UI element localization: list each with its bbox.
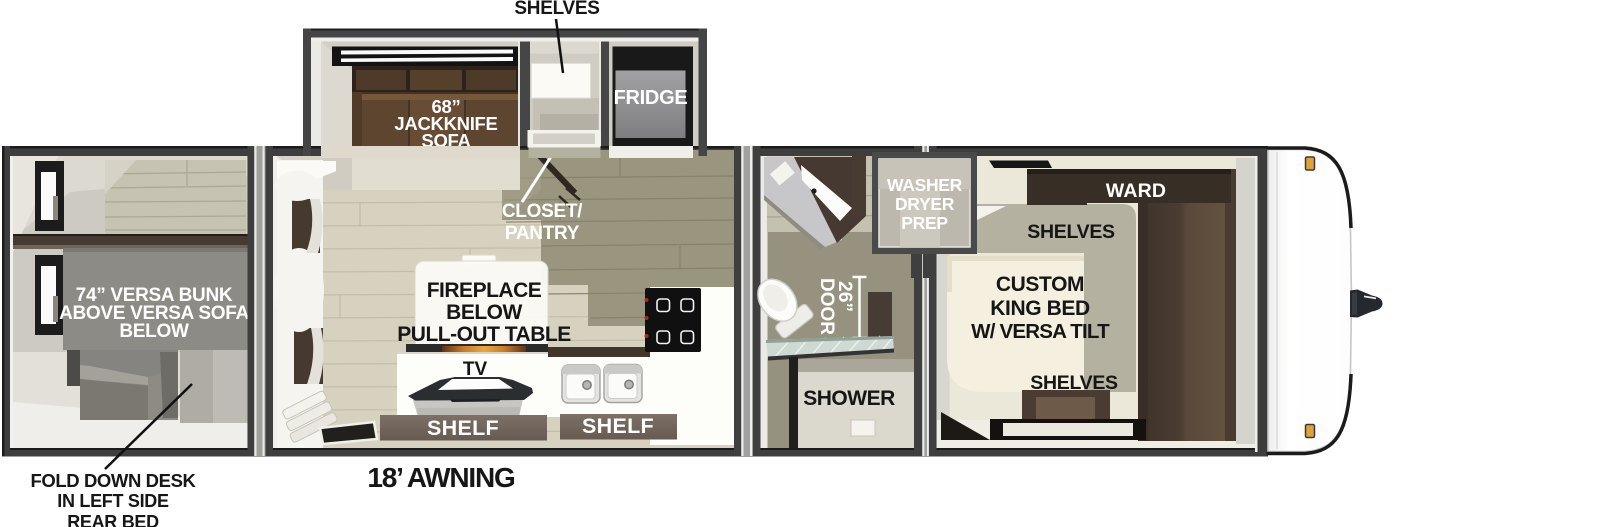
svg-text:BELOW: BELOW	[119, 321, 189, 342]
svg-text:SHELF: SHELF	[427, 416, 499, 440]
svg-text:BELOW: BELOW	[446, 301, 522, 324]
svg-text:WARD: WARD	[1106, 180, 1166, 202]
svg-text:PANTRY: PANTRY	[505, 223, 580, 244]
svg-text:SHOWER: SHOWER	[803, 387, 895, 410]
svg-text:KING BED: KING BED	[990, 297, 1090, 320]
svg-text:CLOSET/: CLOSET/	[502, 201, 583, 222]
svg-text:CUSTOM: CUSTOM	[996, 273, 1084, 296]
svg-text:REAR BED: REAR BED	[67, 512, 159, 527]
svg-text:W/ VERSA TILT: W/ VERSA TILT	[971, 320, 1110, 343]
svg-text:SHELF: SHELF	[582, 414, 654, 438]
svg-text:TV: TV	[463, 359, 488, 380]
svg-text:SHELVES: SHELVES	[514, 0, 599, 19]
svg-text:FOLD DOWN DESK: FOLD DOWN DESK	[30, 470, 196, 491]
svg-text:PREP: PREP	[901, 213, 948, 233]
svg-text:PULL-OUT TABLE: PULL-OUT TABLE	[397, 323, 571, 346]
svg-text:FIREPLACE: FIREPLACE	[427, 279, 542, 302]
svg-text:SHELVES: SHELVES	[1027, 221, 1115, 243]
svg-text:DRYER: DRYER	[895, 194, 955, 214]
svg-text:WASHER: WASHER	[887, 175, 963, 195]
svg-text:IN LEFT SIDE: IN LEFT SIDE	[57, 491, 169, 511]
svg-text:FRIDGE: FRIDGE	[614, 87, 688, 109]
svg-text:18’ AWNING: 18’ AWNING	[367, 462, 515, 493]
